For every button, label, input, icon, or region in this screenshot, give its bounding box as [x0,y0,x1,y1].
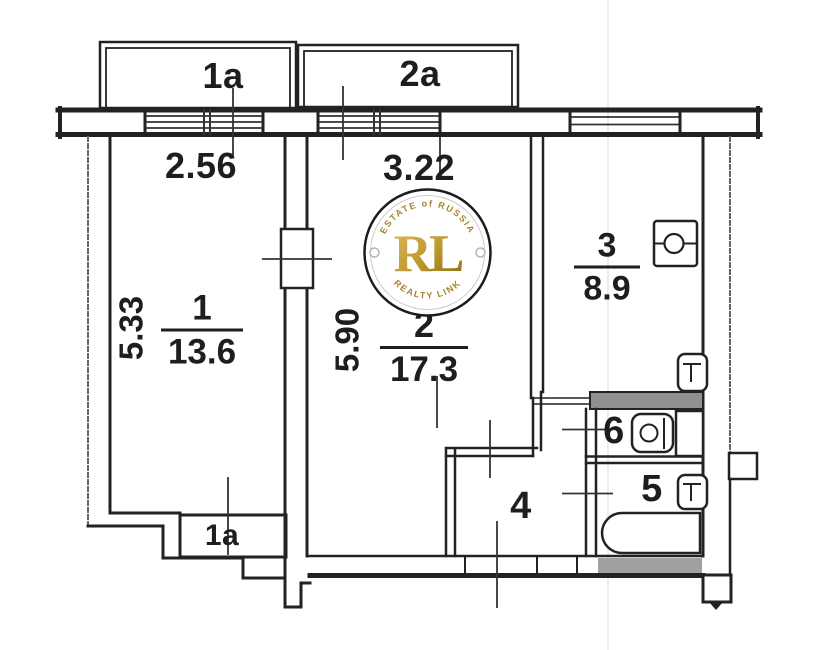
left-wall [88,137,110,526]
right-wall [703,137,757,610]
bath-wc-divider-wall [586,457,703,464]
floor-plan-page: 1a 2a 2.56 3.22 5.33 5.90 1 13.6 2 17.3 … [0,0,837,650]
hallway-walls [446,392,596,556]
stove-icon [654,221,697,266]
room4-number: 4 [510,487,532,525]
logo-initials: RL [394,225,463,283]
room3-number: 3 [574,229,640,269]
middle-wall [281,137,313,578]
balcony-door-label: 1a [205,521,239,551]
room1-label: 1 13.6 [161,291,243,370]
room6-number: 6 [603,412,625,450]
bottom-wall [307,556,703,576]
room2-area: 17.3 [390,349,458,387]
dim-room1-depth: 5.33 [115,296,148,360]
room3-area: 8.9 [583,269,630,306]
window-kitchen [572,117,678,125]
bathtub-icon [602,513,700,553]
balcony-2a-label: 2a [399,56,440,92]
window-room1 [147,110,261,134]
watermark-logo: ESTATE of RUSSIA REALTY LINK RL [360,185,495,320]
kitchen-door-icon [678,354,707,391]
toilet-icon [632,414,673,452]
dim-room1-width: 2.56 [165,148,237,184]
dim-room2-width: 3.22 [383,150,455,186]
room3-label: 3 8.9 [574,229,640,306]
room1-number: 1 [161,291,243,332]
balcony-1a-outline [100,42,296,108]
washbasin-icon [676,411,703,456]
room5-number: 5 [641,470,663,508]
dim-room2-depth: 5.90 [331,308,364,372]
logo-right-dot [476,248,485,257]
room1-area: 13.6 [168,332,236,370]
bath-door-icon [678,475,707,509]
logo-left-dot [370,248,379,257]
window-room2 [320,110,438,134]
balcony-1a-label: 1a [202,58,243,94]
